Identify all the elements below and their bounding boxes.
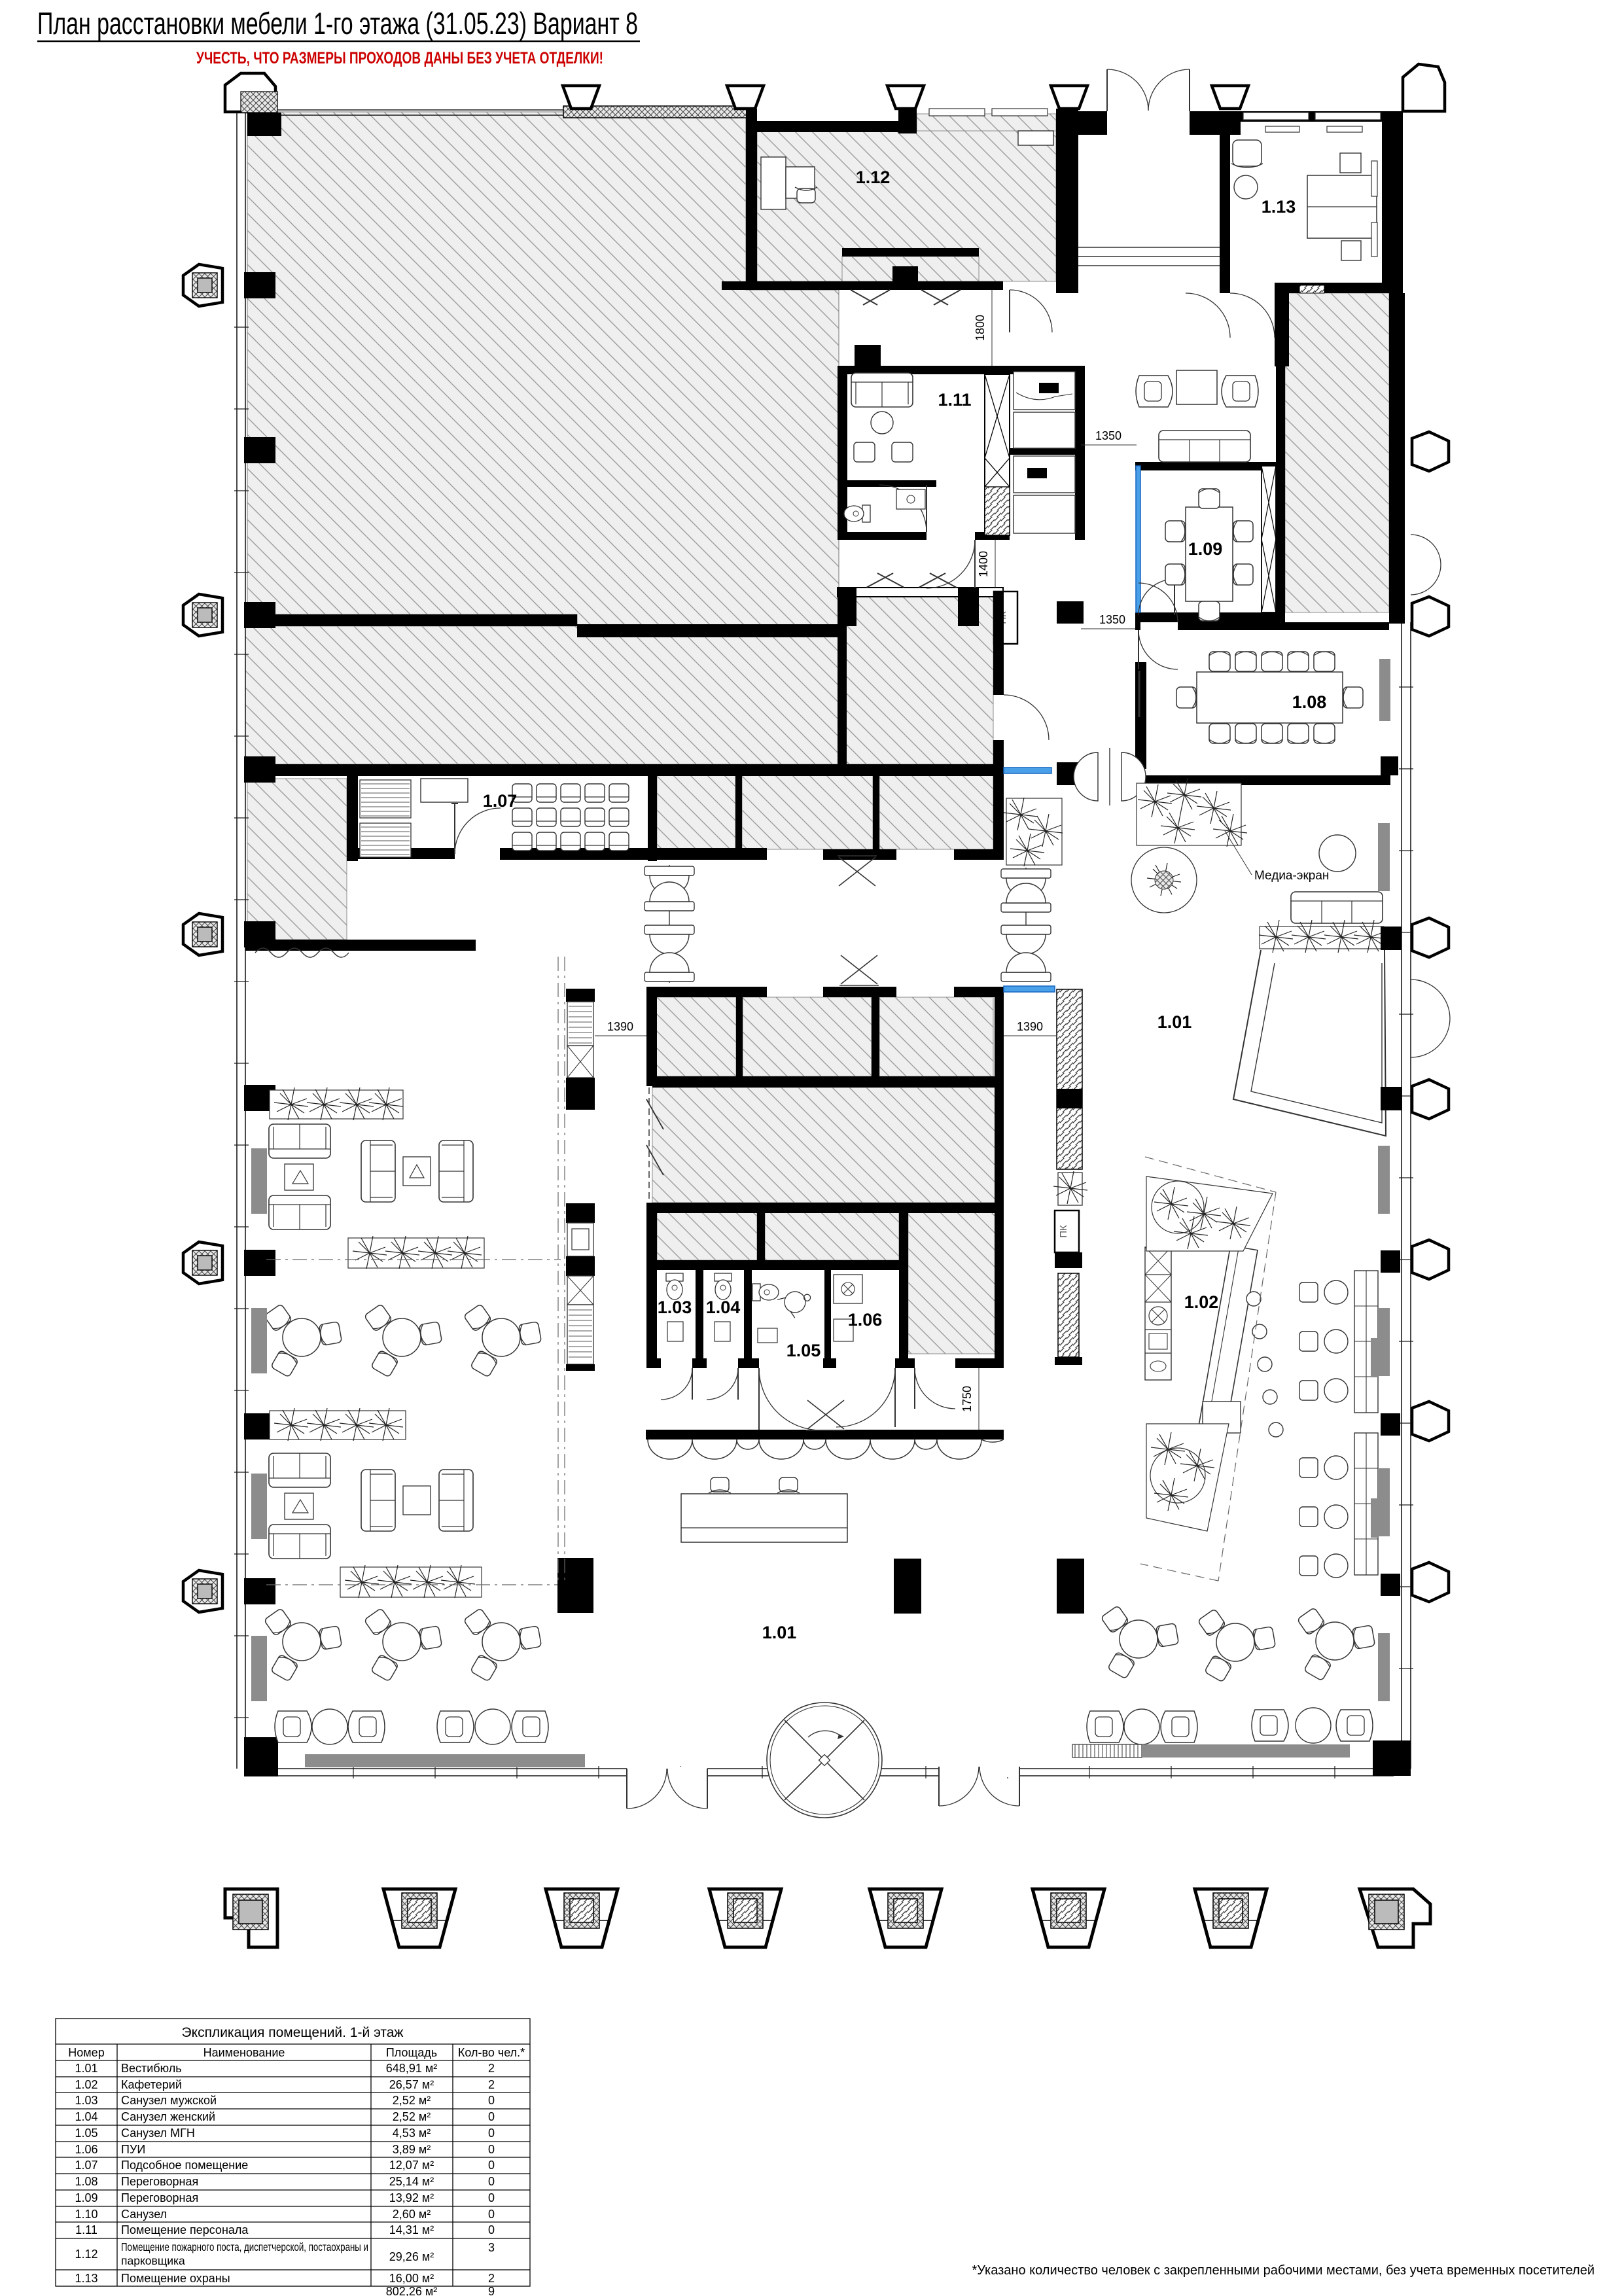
svg-text:13,92 м²: 13,92 м² (389, 2191, 434, 2204)
svg-text:Санузел: Санузел (121, 2208, 167, 2221)
svg-text:Помещение охраны: Помещение охраны (121, 2272, 230, 2285)
svg-text:1.02: 1.02 (1184, 1292, 1219, 1312)
svg-text:Вестибюль: Вестибюль (121, 2062, 182, 2075)
svg-text:1400: 1400 (977, 551, 990, 577)
svg-text:1.01: 1.01 (1157, 1012, 1192, 1032)
svg-text:1.11: 1.11 (938, 390, 971, 410)
svg-text:16,00 м²: 16,00 м² (389, 2272, 434, 2285)
svg-text:1.13: 1.13 (75, 2272, 97, 2285)
svg-text:0: 0 (488, 2143, 495, 2156)
svg-text:1.06: 1.06 (848, 1310, 883, 1330)
svg-text:1.09: 1.09 (75, 2191, 97, 2204)
svg-text:0: 0 (488, 2175, 495, 2188)
svg-text:*Указано количество человек с: *Указано количество человек с закрепленн… (972, 2263, 1595, 2278)
svg-text:1.11: 1.11 (75, 2223, 97, 2236)
svg-text:1.12: 1.12 (75, 2248, 97, 2261)
svg-text:1.01: 1.01 (75, 2062, 97, 2075)
svg-text:0: 0 (488, 2208, 495, 2221)
svg-text:Экспликация помещений. 1-й эта: Экспликация помещений. 1-й этаж (182, 2025, 404, 2040)
svg-text:0: 0 (488, 2110, 495, 2123)
svg-text:Переговорная: Переговорная (121, 2191, 198, 2204)
svg-text:1750: 1750 (961, 1386, 974, 1412)
svg-text:0: 0 (488, 2191, 495, 2204)
svg-text:12,07 м²: 12,07 м² (389, 2159, 434, 2172)
svg-text:1.13: 1.13 (1262, 197, 1296, 217)
svg-text:ПК: ПК (1058, 1225, 1069, 1238)
svg-text:1350: 1350 (1099, 613, 1125, 626)
svg-text:25,14 м²: 25,14 м² (389, 2175, 434, 2188)
svg-text:648,91 м²: 648,91 м² (386, 2062, 437, 2075)
svg-text:2,60 м²: 2,60 м² (393, 2208, 431, 2221)
svg-text:1390: 1390 (1017, 1020, 1043, 1033)
svg-text:Подсобное помещение: Подсобное помещение (121, 2159, 248, 2172)
svg-text:0: 0 (488, 2127, 495, 2140)
svg-text:Санузел мужской: Санузел мужской (121, 2094, 217, 2107)
svg-text:Помещение пожарного поста, дис: Помещение пожарного поста, диспетчерской… (121, 2240, 368, 2253)
svg-text:0: 0 (488, 2223, 495, 2236)
svg-text:Медиа-экран: Медиа-экран (1254, 869, 1329, 883)
svg-text:1.03: 1.03 (75, 2094, 97, 2107)
svg-text:802,26 м²: 802,26 м² (386, 2285, 437, 2296)
svg-text:3: 3 (488, 2241, 495, 2254)
svg-text:парковщика: парковщика (121, 2254, 185, 2267)
svg-text:0: 0 (488, 2094, 495, 2107)
svg-text:1.05: 1.05 (75, 2127, 97, 2140)
svg-text:0: 0 (488, 2159, 495, 2172)
svg-text:Номер: Номер (68, 2046, 104, 2059)
svg-text:4,53 м²: 4,53 м² (393, 2127, 431, 2140)
svg-text:14,31 м²: 14,31 м² (389, 2223, 434, 2236)
svg-text:Площадь: Площадь (386, 2046, 437, 2059)
svg-text:2,52 м²: 2,52 м² (393, 2110, 431, 2123)
svg-text:2,52 м²: 2,52 м² (393, 2094, 431, 2107)
svg-text:2: 2 (488, 2062, 495, 2075)
svg-text:2: 2 (488, 2272, 495, 2285)
svg-text:1.04: 1.04 (706, 1298, 741, 1317)
svg-text:1.12: 1.12 (856, 168, 891, 187)
svg-text:3,89 м²: 3,89 м² (393, 2143, 431, 2156)
svg-text:2: 2 (488, 2078, 495, 2091)
svg-text:Санузел МГН: Санузел МГН (121, 2127, 195, 2140)
svg-text:Кол-во чел.*: Кол-во чел.* (458, 2046, 525, 2059)
svg-text:26,57 м²: 26,57 м² (389, 2078, 434, 2091)
svg-text:1.08: 1.08 (75, 2175, 97, 2188)
svg-text:1.08: 1.08 (1292, 692, 1327, 712)
svg-text:1.06: 1.06 (75, 2143, 97, 2156)
svg-text:1800: 1800 (974, 315, 987, 341)
svg-text:Кафетерий: Кафетерий (121, 2078, 182, 2091)
svg-text:План расстановки мебели 1-го э: План расстановки мебели 1-го этажа (31.0… (37, 6, 638, 41)
svg-text:1.02: 1.02 (75, 2078, 97, 2091)
svg-text:29,26 м²: 29,26 м² (389, 2250, 434, 2263)
svg-text:Санузел женский: Санузел женский (121, 2110, 215, 2123)
svg-text:9: 9 (488, 2285, 495, 2296)
svg-text:1350: 1350 (1095, 429, 1121, 442)
svg-text:1.07: 1.07 (483, 791, 518, 811)
svg-text:1.04: 1.04 (75, 2110, 97, 2123)
svg-text:1.10: 1.10 (75, 2208, 97, 2221)
svg-text:1.03: 1.03 (658, 1298, 692, 1317)
svg-text:ПУИ: ПУИ (121, 2143, 145, 2156)
svg-text:Помещение персонала: Помещение персонала (121, 2223, 249, 2236)
svg-text:1.07: 1.07 (75, 2159, 97, 2172)
svg-text:1.05: 1.05 (786, 1341, 821, 1360)
svg-text:1390: 1390 (607, 1020, 633, 1033)
svg-text:1.09: 1.09 (1188, 539, 1223, 559)
svg-text:УЧЕСТЬ, ЧТО РАЗМЕРЫ ПРОХОДОВ Д: УЧЕСТЬ, ЧТО РАЗМЕРЫ ПРОХОДОВ ДАНЫ БЕЗ УЧ… (196, 49, 603, 67)
svg-text:Наименование: Наименование (203, 2046, 285, 2059)
svg-text:1.01: 1.01 (762, 1623, 797, 1642)
svg-text:Переговорная: Переговорная (121, 2175, 198, 2188)
